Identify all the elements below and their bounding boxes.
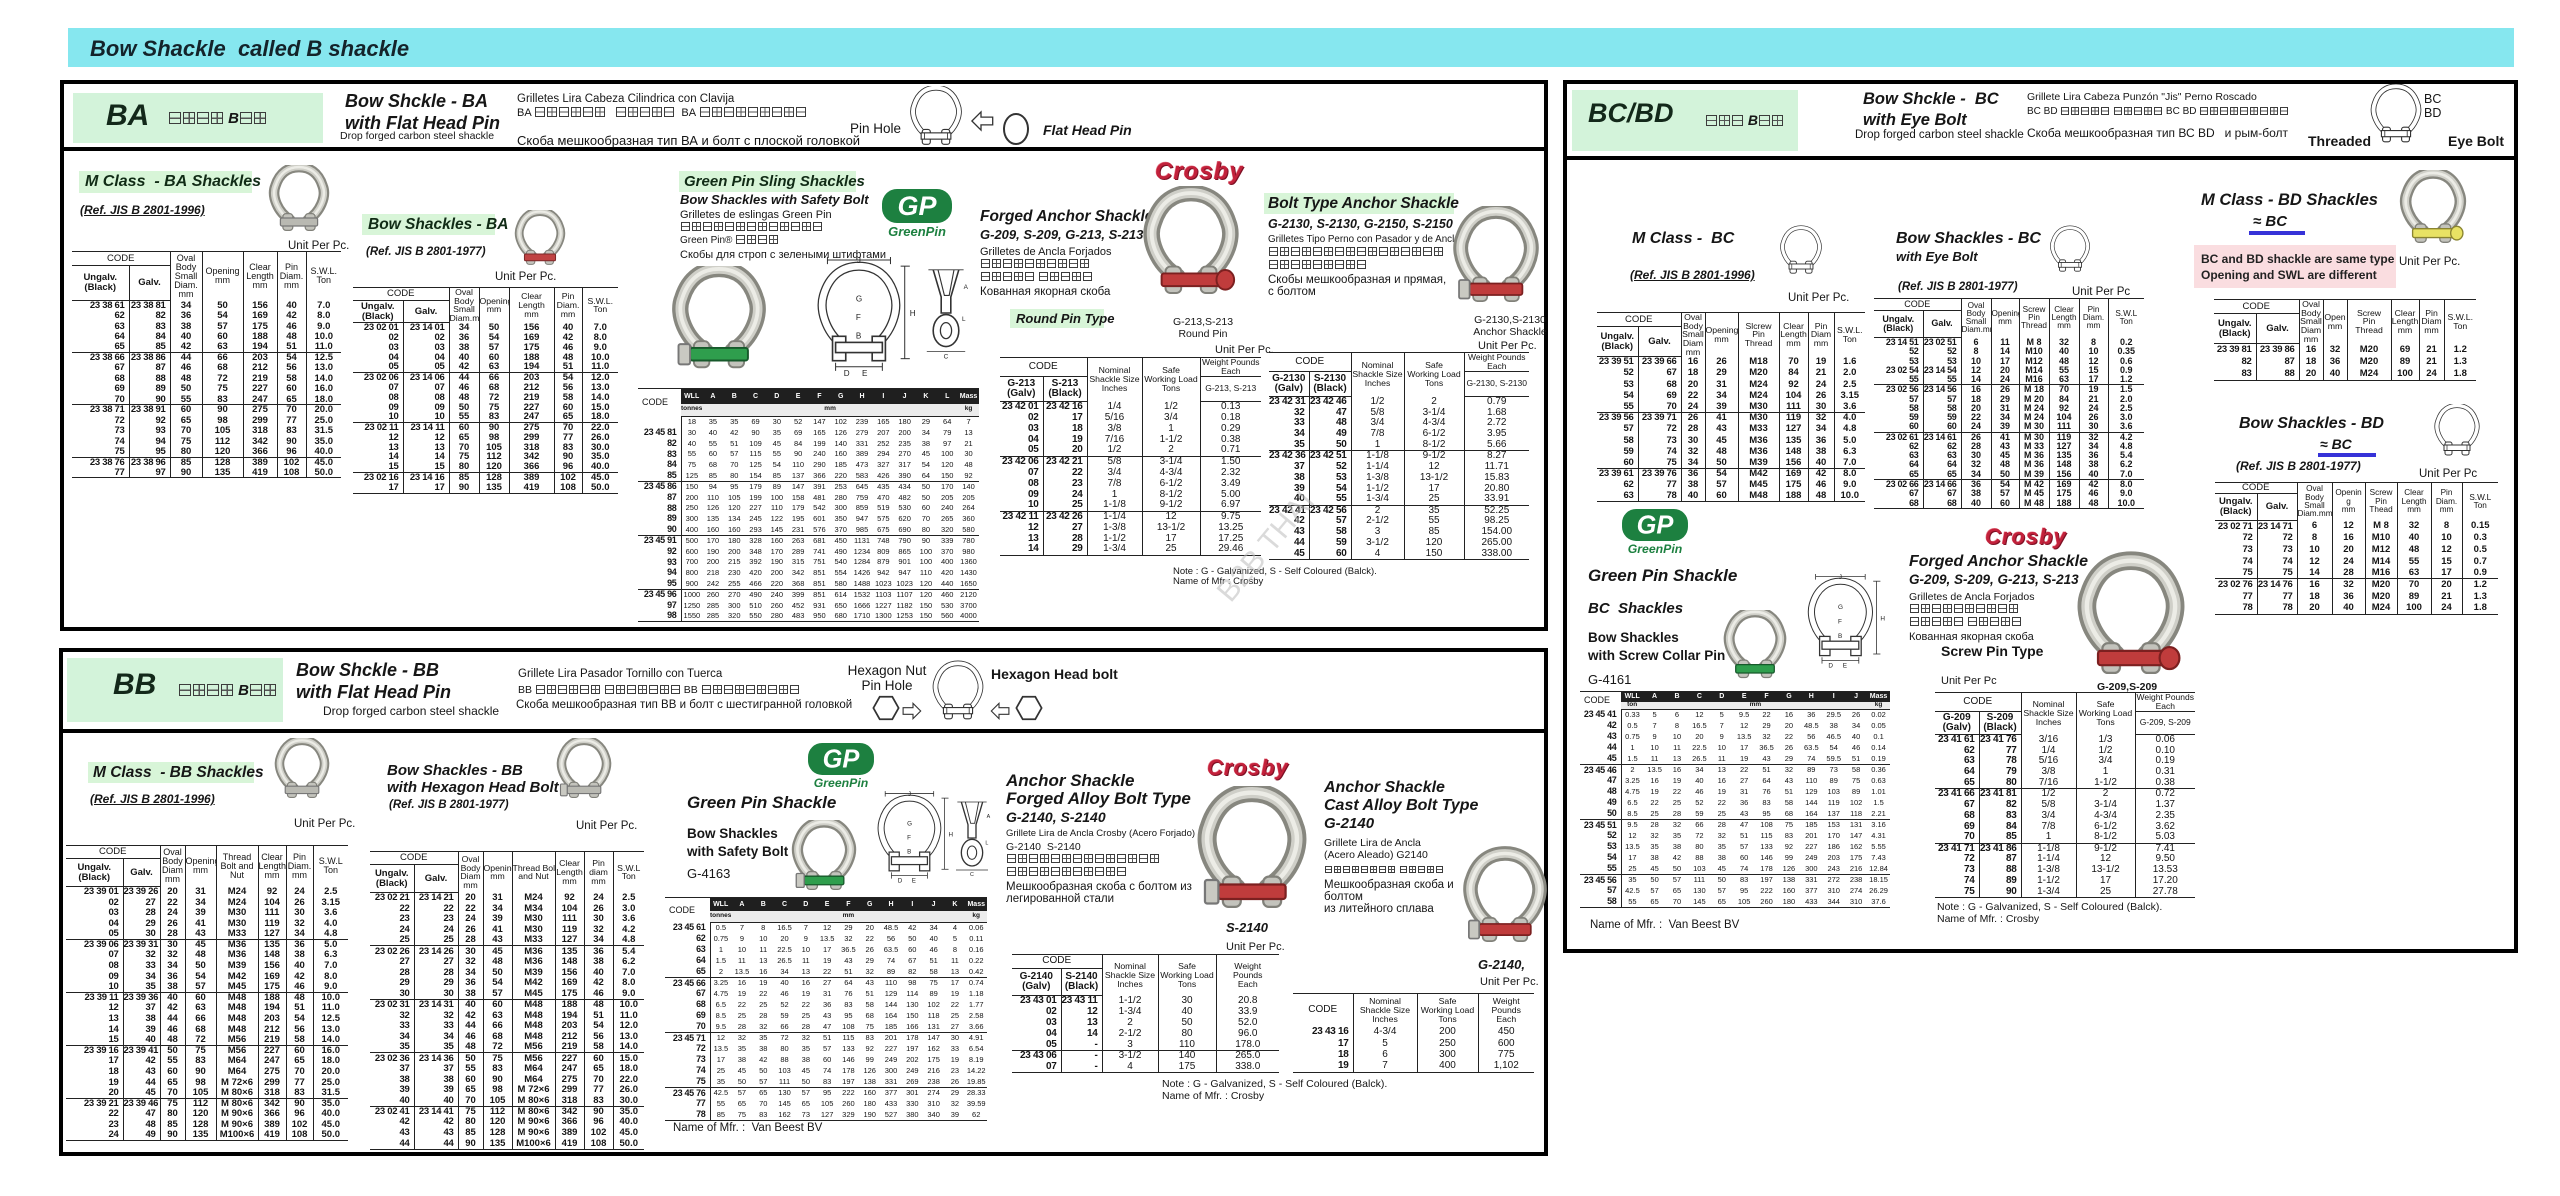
svg-text:G: G (907, 820, 912, 827)
svg-text:J: J (908, 791, 911, 798)
svg-text:E: E (1843, 663, 1847, 670)
svg-text:F: F (907, 835, 911, 842)
svg-text:A: A (987, 814, 991, 820)
svg-text:D: D (1828, 663, 1833, 670)
svg-text:G: G (1838, 604, 1843, 611)
svg-text:L: L (962, 316, 966, 323)
svg-text:C: C (970, 872, 974, 878)
svg-text:GreenPin: GreenPin (888, 224, 946, 239)
svg-text:B: B (907, 849, 911, 856)
svg-text:GP: GP (897, 191, 937, 221)
svg-text:E: E (862, 369, 868, 378)
svg-text:G: G (856, 295, 862, 304)
svg-text:F: F (1838, 619, 1842, 626)
svg-text:L: L (985, 841, 988, 847)
svg-text:B: B (1838, 633, 1842, 640)
svg-text:GreenPin: GreenPin (1628, 542, 1682, 556)
svg-text:B: B (856, 331, 861, 340)
svg-text:J: J (1839, 574, 1842, 581)
svg-text:A: A (964, 284, 969, 291)
svg-text:H: H (910, 309, 916, 318)
svg-text:GP: GP (823, 745, 860, 773)
svg-text:F: F (856, 313, 861, 322)
svg-text:GreenPin: GreenPin (814, 776, 868, 790)
svg-text:H: H (1880, 615, 1885, 622)
svg-text:C: C (944, 354, 949, 361)
svg-text:J: J (857, 257, 861, 265)
svg-text:GP: GP (1637, 511, 1674, 539)
svg-text:D: D (898, 878, 903, 885)
svg-text:E: E (912, 878, 916, 885)
svg-text:D: D (844, 369, 850, 378)
